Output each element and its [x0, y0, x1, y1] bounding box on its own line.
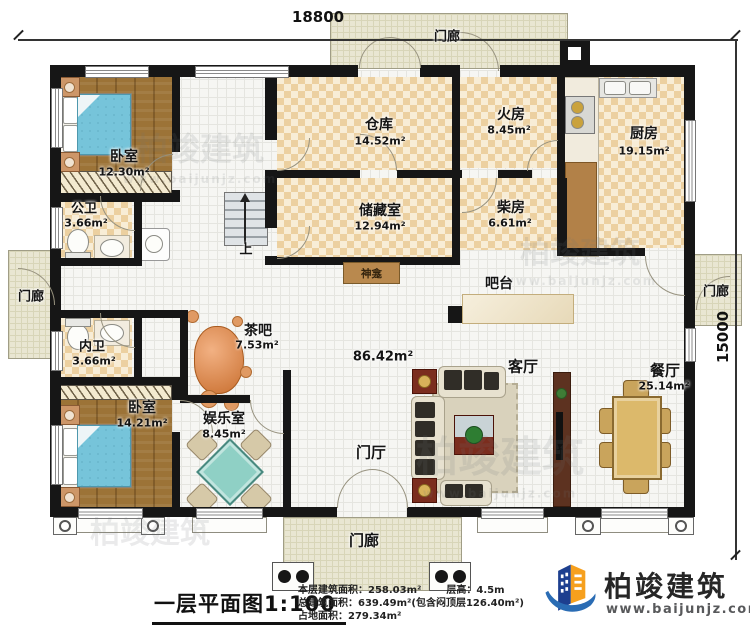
storey-height-text: 层高：4.5m: [446, 585, 504, 596]
sofa-cushion: [465, 484, 483, 498]
wall: [397, 170, 452, 178]
floor-area-text: 本层建筑面积：258.03m²: [298, 585, 421, 596]
sofa-cushion: [415, 421, 435, 437]
room-area-warehouse: 14.52m²: [354, 136, 405, 147]
wall: [50, 377, 180, 385]
shrine: 神龛: [343, 262, 400, 284]
sink: [100, 239, 124, 257]
room-area-firewood-room: 6.61m²: [488, 218, 531, 229]
room-area-bedroom-bottom: 14.21m²: [116, 418, 167, 429]
table-lamp: [418, 484, 431, 497]
decor-stone: [232, 316, 243, 327]
width-dimension-label: 18800: [292, 8, 344, 26]
blanket-fold: [78, 426, 100, 448]
stairs-direction-arrow: [244, 200, 246, 244]
column-base: [53, 517, 77, 535]
stairs-up-label: 上: [239, 244, 252, 257]
nightstand: [59, 152, 80, 172]
wall: [500, 65, 695, 77]
pillow: [63, 125, 78, 152]
wall: [420, 65, 455, 77]
window: [195, 66, 289, 78]
wall: [277, 170, 360, 178]
wall: [452, 170, 462, 178]
window-sill: [477, 517, 548, 533]
room-label-public-bath: 公卫: [71, 203, 97, 216]
window-sill: [74, 517, 147, 533]
wall: [172, 432, 180, 517]
pillow: [63, 97, 78, 124]
room-label-tea-bar: 茶吧: [244, 324, 272, 338]
legend-line-1: 本层建筑面积：258.03m² 层高：4.5m: [298, 584, 524, 597]
logo-graphic: [540, 556, 598, 622]
window: [685, 120, 696, 202]
room-label-dining: 餐厅: [650, 364, 680, 379]
dining-table: [612, 396, 662, 480]
bar-label: 吧台: [485, 277, 513, 291]
room-area-dining: 25.14m²: [638, 381, 689, 392]
wall: [50, 258, 142, 266]
blanket-fold: [78, 95, 100, 117]
height-dimension-label: 15000: [714, 311, 732, 363]
company-logo-icon: [540, 556, 598, 622]
legend-line-3: 占地面积：279.34m²: [298, 610, 524, 623]
company-website: www.baijunjz.com: [606, 602, 750, 617]
wall: [557, 248, 645, 256]
wall: [557, 178, 567, 250]
room-area-private-bath: 3.66m²: [72, 356, 115, 367]
kitchen-cabinet: [565, 162, 597, 256]
sofa-cushion: [415, 440, 435, 456]
nightstand: [59, 487, 80, 507]
shrine-label: 神龛: [361, 266, 382, 281]
stairs-arrow-head: [240, 193, 250, 202]
nightstand: [59, 405, 80, 425]
sofa-cushion: [484, 372, 499, 390]
room-area-tea-bar: 7.53m²: [235, 340, 278, 351]
sink-bowl: [604, 81, 626, 95]
room-label-kitchen: 厨房: [630, 127, 658, 141]
wall: [452, 65, 460, 178]
window: [51, 425, 63, 485]
room-label-storage: 储藏室: [359, 204, 401, 218]
decor-stone: [240, 366, 252, 378]
wall: [172, 65, 180, 152]
room-label-living: 客厅: [508, 360, 538, 375]
window: [196, 508, 263, 519]
column-base: [575, 517, 601, 535]
room-label-private-bath: 内卫: [79, 341, 105, 354]
sofa-cushion: [464, 370, 482, 390]
room-label-warehouse: 仓库: [365, 118, 393, 132]
legend-line-2: 总建筑面积：639.49m²(包含闷顶层126.40m²): [298, 597, 524, 610]
column-base: [141, 517, 165, 535]
chimney-flue: [568, 47, 581, 60]
room-area-storage: 12.94m²: [354, 221, 405, 232]
room-label-fire-room: 火房: [497, 108, 525, 122]
window: [51, 207, 63, 249]
wall: [180, 310, 188, 403]
kitchen-floor: [597, 77, 685, 248]
window: [685, 328, 696, 362]
room-label-entertainment: 娱乐室: [203, 412, 245, 426]
right-dimension-line: [735, 39, 737, 560]
window-sill: [597, 517, 672, 533]
sofa-cushion: [415, 402, 435, 418]
sofa-cushion: [444, 370, 462, 390]
room-label-bedroom-bottom: 卧室: [128, 401, 156, 415]
wall: [283, 370, 291, 517]
window: [85, 66, 149, 78]
bar-pillar: [448, 306, 462, 323]
washing-machine-drum: [145, 235, 163, 253]
plant: [465, 426, 483, 444]
bar-counter: [462, 294, 574, 324]
stove-burner: [571, 116, 584, 129]
room-area-living: 86.42m²: [353, 351, 413, 364]
window: [78, 508, 143, 519]
area-statistics: 本层建筑面积：258.03m² 层高：4.5m 总建筑面积：639.49m²(包…: [298, 584, 524, 623]
stove-burner: [571, 101, 584, 114]
top-dimension-line: [18, 39, 738, 41]
pillow: [63, 457, 78, 485]
wall: [452, 178, 460, 265]
foyer-label: 门厅: [356, 446, 386, 461]
sofa-cushion: [415, 459, 435, 475]
room-area-public-bath: 3.66m²: [64, 218, 107, 229]
plant: [556, 388, 567, 399]
room-area-bedroom-top: 12.30m²: [98, 167, 149, 178]
window: [51, 331, 63, 371]
room-area-kitchen: 19.15m²: [618, 146, 669, 157]
window: [51, 88, 63, 148]
room-label-bedroom-top: 卧室: [110, 150, 138, 164]
wall: [134, 310, 142, 385]
table-lamp: [418, 375, 431, 388]
porch-south-label: 门廊: [349, 534, 379, 549]
wall: [265, 170, 277, 228]
tea-bar-feature: [194, 326, 244, 394]
room-label-firewood-room: 柴房: [497, 201, 525, 215]
column-base: [668, 517, 694, 535]
wall: [498, 170, 532, 178]
room-area-entertainment: 8.45m²: [202, 429, 245, 440]
bedroom-bottom-closet: [58, 385, 172, 400]
wall: [172, 377, 180, 400]
porch-north-label: 门廊: [434, 31, 460, 44]
sofa-cushion: [445, 484, 463, 498]
company-name: 柏竣建筑: [604, 565, 728, 605]
pillow: [63, 428, 78, 456]
wall: [557, 65, 565, 178]
window: [601, 508, 668, 519]
window: [481, 508, 544, 519]
tv: [556, 412, 563, 460]
sink-bowl: [629, 81, 651, 95]
floor-plan-canvas: 18800 15000 门廊 门廊 门廊 门廊: [0, 0, 750, 630]
room-area-fire-room: 8.45m²: [487, 125, 530, 136]
wall: [134, 193, 142, 266]
porch-west-label: 门廊: [18, 291, 44, 304]
window-sill: [192, 517, 267, 533]
porch-east-label: 门廊: [703, 286, 729, 299]
toilet-tank: [65, 318, 91, 327]
